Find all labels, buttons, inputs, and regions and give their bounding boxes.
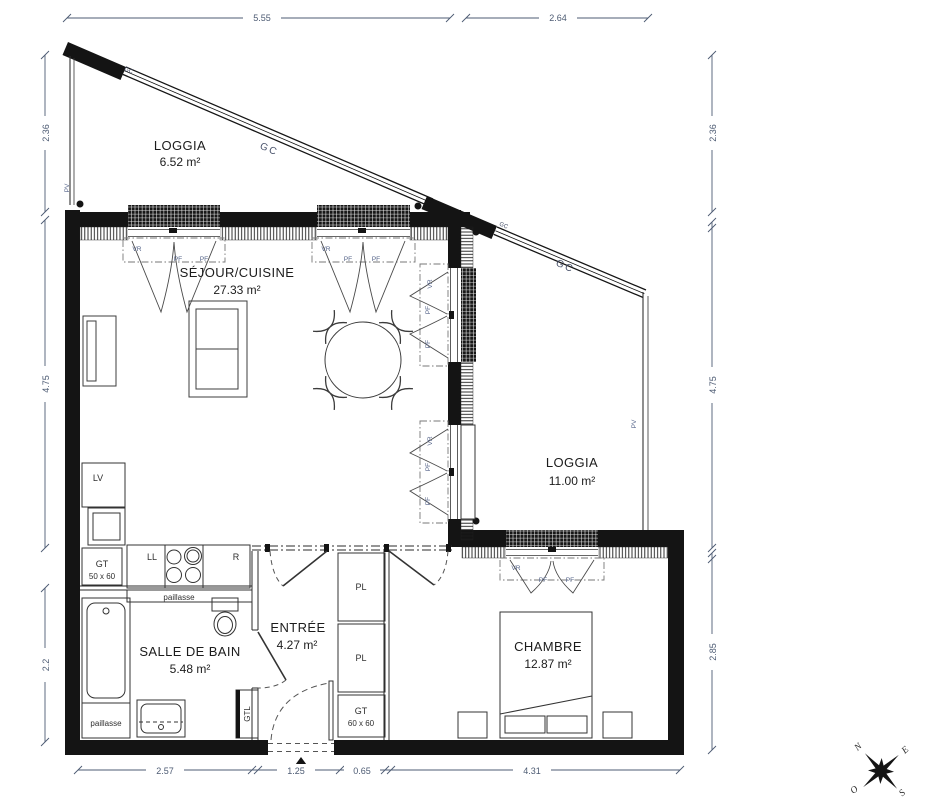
pf-label: PF bbox=[174, 256, 182, 263]
chair-icon bbox=[379, 310, 413, 344]
wall-bottom-right bbox=[334, 740, 684, 755]
vanity-basin bbox=[141, 704, 181, 733]
shutter-box-icon bbox=[128, 205, 220, 227]
gc-label-left: GC bbox=[258, 141, 280, 159]
gt-entree-size: 60 x 60 bbox=[348, 719, 375, 728]
floor-plan: LOGGIA 6.52 m² GC GC PV LOGGIA 11.00 m² … bbox=[0, 0, 934, 800]
pf-label: PF bbox=[200, 256, 208, 263]
dim-top-2: 2.64 bbox=[549, 13, 567, 23]
pl-1-label: PL bbox=[355, 582, 366, 592]
chair-icon bbox=[379, 376, 413, 410]
shutter-open-box bbox=[461, 425, 475, 519]
dim-bottom: 2.57 1.25 0.65 4.31 bbox=[74, 764, 684, 776]
bathroom: paillasse paillasse GTL SALLE DE BAIN 5.… bbox=[82, 590, 258, 738]
shutter-box-icon bbox=[461, 268, 476, 362]
casement-swing bbox=[510, 560, 594, 593]
toilet-tank bbox=[212, 598, 238, 611]
kitchen: LV GT 50 x 60 LL R bbox=[82, 463, 250, 588]
bathtub-basin bbox=[87, 603, 125, 698]
window-chambre: VR PF PF bbox=[500, 530, 604, 593]
gtl-label: GTL bbox=[243, 706, 252, 722]
entree-area: 4.27 m² bbox=[277, 638, 318, 652]
pf-label: PF bbox=[344, 256, 352, 263]
dim-top-1: 5.55 bbox=[253, 13, 271, 23]
sejour: SÉJOUR/CUISINE 27.33 m² bbox=[83, 265, 413, 410]
pillow bbox=[547, 716, 587, 733]
vr-label: VR bbox=[427, 279, 434, 288]
compass-rose: N E S O bbox=[849, 741, 912, 799]
kitchen-sink-basin bbox=[93, 513, 120, 540]
gc-label-small-right: GC bbox=[498, 222, 509, 231]
wall-diagonal-left bbox=[63, 42, 127, 80]
wall-right bbox=[668, 545, 684, 755]
chair-icon bbox=[313, 310, 347, 344]
sejour-name: SÉJOUR/CUISINE bbox=[180, 265, 295, 280]
gtl-edge bbox=[236, 690, 240, 738]
hatch-chambre-2 bbox=[598, 547, 668, 558]
hatch-right-2 bbox=[461, 362, 473, 425]
compass-o: O bbox=[849, 784, 861, 796]
tv-stand bbox=[83, 316, 116, 386]
vr-label: VR bbox=[321, 246, 330, 253]
lv-label: LV bbox=[93, 473, 103, 483]
paillasse-top-label: paillasse bbox=[163, 593, 195, 602]
window-sejour-2: VR PF PF bbox=[312, 205, 415, 312]
vanity-sink bbox=[137, 700, 185, 737]
kitchen-sink bbox=[88, 508, 125, 545]
dining-table bbox=[325, 322, 401, 398]
nightstand bbox=[603, 712, 632, 738]
burner-icon bbox=[186, 568, 201, 583]
r-label: R bbox=[233, 552, 240, 562]
dimensions: 5.55 2.64 2.36 4.75 2.2 2.36 bbox=[38, 11, 718, 776]
dim-left: 2.36 4.75 2.2 bbox=[38, 51, 51, 746]
dim-bottom-4: 4.31 bbox=[523, 766, 541, 776]
dim-left-3: 2.2 bbox=[41, 659, 51, 672]
casement-swing bbox=[321, 241, 405, 312]
dim-top: 5.55 2.64 bbox=[63, 11, 652, 23]
loggia-top-name: LOGGIA bbox=[154, 138, 206, 153]
tv-stand-shelf bbox=[87, 321, 96, 381]
compass-n: N bbox=[852, 741, 865, 754]
post-icon bbox=[77, 201, 84, 208]
door-entree bbox=[270, 551, 327, 586]
burner-icon bbox=[167, 550, 181, 564]
window-sejour-3: VR PF PF bbox=[410, 264, 476, 366]
chair-icon bbox=[313, 376, 347, 410]
pf-label: PF bbox=[372, 256, 380, 263]
gt-kitchen-label: GT bbox=[96, 559, 109, 569]
pf-label: PF bbox=[566, 577, 574, 584]
pf-label: PF bbox=[425, 306, 432, 314]
windows: VR PF PF VR PF PF VR PF bbox=[123, 205, 604, 593]
gc-label-right: GC bbox=[554, 258, 576, 276]
gt-kitchen-size: 50 x 60 bbox=[89, 572, 116, 581]
nightstand bbox=[458, 712, 487, 738]
vr-label: VR bbox=[132, 246, 141, 253]
wall-hatch-bands bbox=[80, 227, 668, 558]
salle-de-bain-area: 5.48 m² bbox=[170, 662, 211, 676]
dim-bottom-2: 1.25 bbox=[287, 766, 305, 776]
drain-icon bbox=[103, 608, 109, 614]
railing-gc-left bbox=[123, 67, 433, 206]
pv-label-right: PV bbox=[631, 419, 638, 428]
shutter-box-icon bbox=[506, 530, 598, 549]
ll-label: LL bbox=[147, 552, 157, 562]
chambre-name: CHAMBRE bbox=[514, 639, 582, 654]
doors bbox=[258, 551, 448, 772]
dim-right-1: 2.36 bbox=[708, 124, 718, 142]
pillow bbox=[505, 716, 545, 733]
post-icon bbox=[415, 203, 422, 210]
dishwasher bbox=[82, 463, 125, 507]
post-icon bbox=[473, 229, 480, 236]
pf-label: PF bbox=[425, 497, 432, 505]
pf-label: PF bbox=[539, 577, 547, 584]
loggia-right: LOGGIA 11.00 m² GC GC PV bbox=[473, 222, 649, 530]
window-sejour-1: VR PF PF bbox=[123, 205, 225, 312]
partitions bbox=[80, 544, 452, 740]
dim-right-2: 4.75 bbox=[708, 376, 718, 394]
gt-entree-label: GT bbox=[355, 706, 368, 716]
hatch-right-1 bbox=[461, 227, 473, 268]
vr-label: VR bbox=[427, 436, 434, 445]
compass-star-icon bbox=[863, 753, 899, 789]
dim-right: 2.36 4.75 2.85 bbox=[705, 51, 718, 754]
chambre: CHAMBRE 12.87 m² bbox=[458, 612, 632, 738]
dim-right-3: 2.85 bbox=[708, 643, 718, 661]
bed-fold-line bbox=[500, 696, 592, 714]
drain-icon bbox=[159, 725, 164, 730]
shutter-box-icon bbox=[317, 205, 410, 227]
pv-label-left: PV bbox=[64, 183, 71, 192]
hatch-top-3 bbox=[410, 227, 448, 240]
loggia-right-name: LOGGIA bbox=[546, 455, 598, 470]
floor-plan-svg: LOGGIA 6.52 m² GC GC PV LOGGIA 11.00 m² … bbox=[0, 0, 934, 800]
bed bbox=[500, 612, 592, 738]
sejour-area: 27.33 m² bbox=[213, 283, 260, 297]
chambre-area: 12.87 m² bbox=[524, 657, 571, 671]
entree-name: ENTRÉE bbox=[270, 620, 325, 635]
duct-gt-entree bbox=[338, 695, 385, 737]
loggia-right-area: 11.00 m² bbox=[549, 474, 595, 488]
dim-bottom-1: 2.57 bbox=[156, 766, 174, 776]
vr-label: VR bbox=[511, 565, 520, 572]
compass-e: E bbox=[899, 745, 911, 757]
compass-s: S bbox=[898, 788, 908, 799]
dim-left-2: 4.75 bbox=[41, 375, 51, 393]
entree: ENTRÉE 4.27 m² PL PL GT 60 x 60 bbox=[270, 553, 385, 737]
paillasse-bottom-label: paillasse bbox=[90, 719, 122, 728]
dim-bottom-3: 0.65 bbox=[353, 766, 371, 776]
hatch-chambre-1 bbox=[462, 547, 506, 558]
door-chambre bbox=[389, 551, 448, 585]
wall-left bbox=[65, 210, 80, 755]
burner-icon bbox=[187, 550, 199, 562]
entrance-door bbox=[268, 681, 334, 772]
wall-sejour-right-b bbox=[448, 362, 461, 425]
pf-label: PF bbox=[425, 340, 432, 348]
wall-bottom-left bbox=[65, 740, 268, 755]
burner-icon bbox=[167, 568, 182, 583]
toilet-bowl-inner bbox=[218, 617, 233, 634]
pl-2-label: PL bbox=[355, 653, 366, 663]
window-sejour-4: VR PF PF bbox=[410, 421, 475, 523]
pf-label: PF bbox=[425, 463, 432, 471]
hatch-top-2 bbox=[220, 227, 317, 240]
loggia-top-area: 6.52 m² bbox=[160, 155, 201, 169]
salle-de-bain-name: SALLE DE BAIN bbox=[139, 644, 240, 659]
hatch-right-3 bbox=[461, 519, 473, 540]
dim-left-1: 2.36 bbox=[41, 124, 51, 142]
wall-sejour-right-c bbox=[448, 519, 461, 545]
hatch-top-1 bbox=[80, 227, 128, 240]
